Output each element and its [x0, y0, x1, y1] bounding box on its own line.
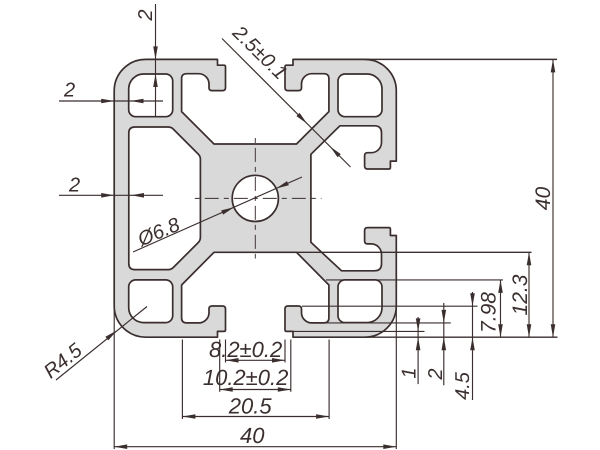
svg-text:8.2±0.2: 8.2±0.2: [209, 337, 282, 362]
svg-text:7.98: 7.98: [478, 292, 501, 333]
svg-text:40: 40: [532, 187, 555, 211]
svg-text:4.5: 4.5: [452, 371, 474, 400]
svg-text:10.2±0.2: 10.2±0.2: [203, 365, 288, 390]
svg-text:1: 1: [399, 367, 421, 378]
svg-text:2: 2: [425, 368, 447, 380]
svg-text:2: 2: [135, 9, 157, 21]
svg-text:2: 2: [63, 80, 75, 102]
svg-text:20.5: 20.5: [228, 394, 273, 419]
svg-text:12.3: 12.3: [509, 274, 532, 315]
svg-text:40: 40: [240, 423, 265, 448]
svg-text:2: 2: [68, 175, 80, 197]
